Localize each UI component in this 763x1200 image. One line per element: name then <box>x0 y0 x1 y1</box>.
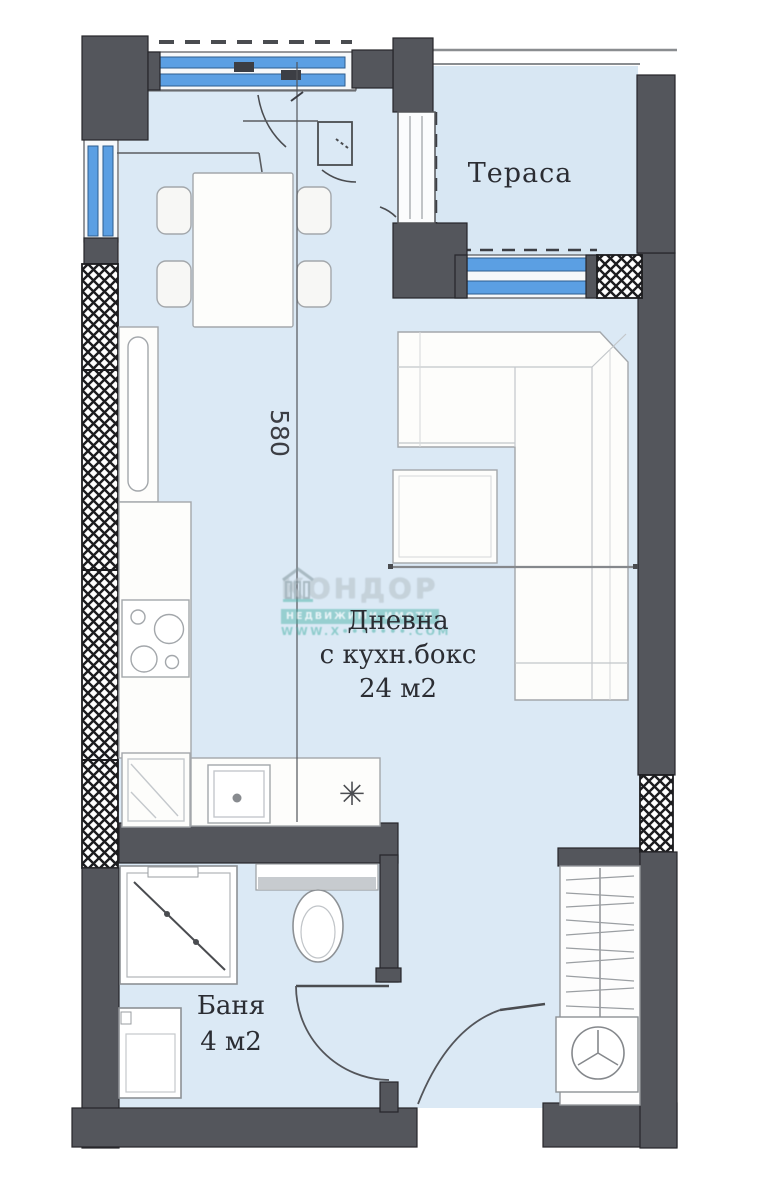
terrace-door <box>398 112 435 223</box>
wall-east-hatched <box>640 775 673 852</box>
wall-bath-east-cap <box>376 968 401 982</box>
radiator <box>128 337 148 491</box>
bathroom-area: 4 м2 <box>178 1024 284 1060</box>
wall-west-hatched <box>82 264 118 868</box>
living-room-area: 24 м2 <box>296 672 500 706</box>
fridge-symbol-icon: ✳ <box>339 775 366 813</box>
living-room-name: Дневна <box>296 604 500 638</box>
wall-south-left <box>72 1108 417 1147</box>
window-interlock-1 <box>234 62 254 72</box>
wall-terrace-east <box>637 75 675 253</box>
bath-sink-cabinet <box>119 1008 181 1098</box>
terrace-label: Тераса <box>452 158 588 189</box>
chair <box>157 187 191 234</box>
wall-north-jamb-left <box>148 52 160 90</box>
shower-faucet <box>148 867 198 877</box>
chair <box>157 261 191 307</box>
wall-east-upper <box>638 253 675 775</box>
floor-line-end-dot <box>388 564 393 569</box>
entry-closet <box>556 866 640 1105</box>
wall-terrace-door-upper <box>393 38 433 112</box>
kitchen-cabinet <box>122 753 190 827</box>
living-room-subtitle: с кухн.бокс <box>296 638 500 672</box>
bathroom-name: Баня <box>178 988 284 1024</box>
dimension-label: 580 <box>253 401 307 465</box>
wall-north-jamb-right <box>352 50 393 88</box>
floor-plan: ✳ <box>0 0 763 1200</box>
east-window-glass-2 <box>467 281 586 294</box>
window-interlock-2 <box>281 70 301 80</box>
coffee-table <box>393 470 497 563</box>
west-window-glass-2 <box>103 146 113 236</box>
west-window-glass-1 <box>88 146 98 236</box>
wall-west-cap <box>84 238 118 264</box>
toilet-cistern-band <box>258 877 376 889</box>
wall-east-lower <box>640 852 677 1148</box>
wall-kitchen-bath <box>119 823 398 863</box>
toilet-bowl <box>293 890 343 962</box>
wall-closet-top <box>558 848 640 866</box>
dining-table <box>193 173 293 327</box>
bathroom-label: Баня 4 м2 <box>178 988 284 1060</box>
chair <box>297 261 331 307</box>
terrace-door-frame <box>398 112 435 223</box>
wall-corner-nw <box>82 36 148 140</box>
floor-line-end-dot <box>633 564 638 569</box>
kitchen-faucet <box>233 794 242 803</box>
living-room-label: Дневна с кухн.бокс 24 м2 <box>296 604 500 706</box>
wall-bath-east <box>380 855 398 982</box>
floor-plan-drawing: ✳ <box>0 0 763 1200</box>
east-window-glass-1 <box>467 258 586 271</box>
shower-diagonal-dot <box>193 939 199 945</box>
chair <box>297 187 331 234</box>
wall-below-terrace-hatched <box>597 255 642 298</box>
shower-diagonal-dot <box>164 911 170 917</box>
wall-west-lower <box>82 868 119 1148</box>
north-window-glass-2 <box>160 74 345 86</box>
wall-bath-door-stub <box>380 1082 398 1112</box>
east-window-cap-left <box>455 255 467 298</box>
